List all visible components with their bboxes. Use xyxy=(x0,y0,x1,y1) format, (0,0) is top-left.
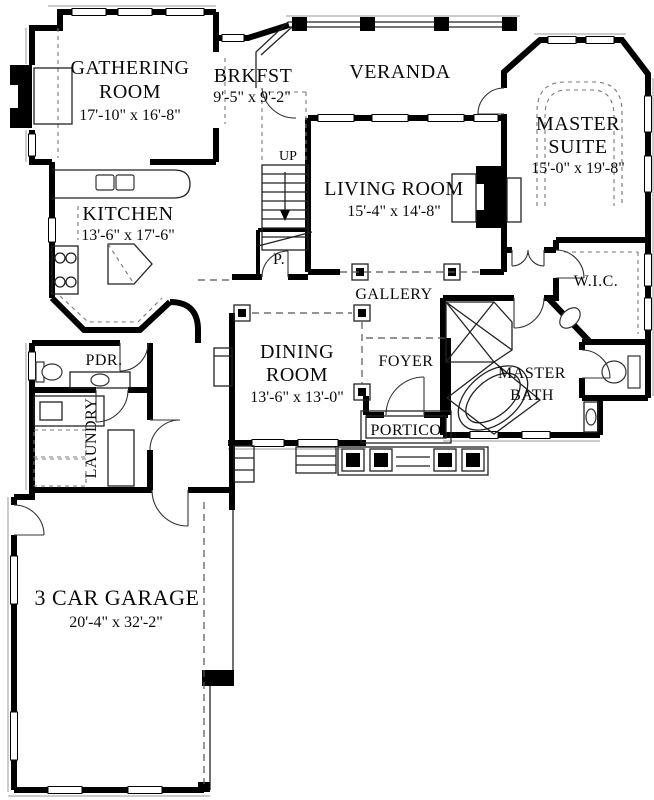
label-kitchen-dims: 13'-6" x 17'-6" xyxy=(81,227,174,244)
dryer xyxy=(34,459,86,486)
label-pdr: PDR. xyxy=(85,352,122,369)
garage-side-door xyxy=(14,505,44,535)
wc-toilet-bowl xyxy=(602,361,626,383)
kitchen-sink xyxy=(96,175,114,190)
label-gallery: GALLERY xyxy=(355,286,432,303)
washer xyxy=(34,430,86,457)
bath-vanity-sink xyxy=(586,409,596,425)
range-burner xyxy=(55,277,65,287)
label-dining-room: ROOM xyxy=(266,364,328,386)
label-garage-dims: 20'-4" x 32'-2" xyxy=(69,614,162,631)
pdr-toilet-bowl xyxy=(42,364,62,380)
label-powder: P. xyxy=(273,251,285,268)
front-door xyxy=(386,377,424,415)
label-master-bath: MASTER xyxy=(498,365,566,382)
range-burner xyxy=(66,277,76,287)
label-laundry: LAUNDRY xyxy=(83,398,100,479)
label-gathering-dims: 17'-10" x 16'-8" xyxy=(79,107,180,124)
range-burner xyxy=(66,253,76,263)
label-brkfst: BRKFST xyxy=(214,65,293,87)
hall-door xyxy=(150,420,180,450)
label-garage: 3 CAR GARAGE xyxy=(35,585,200,610)
label-portico: PORTICO xyxy=(371,422,442,439)
portico-structure xyxy=(338,411,488,475)
hall-stoop xyxy=(234,446,254,482)
label-master-suite: MASTER xyxy=(536,113,620,135)
kitchen-range xyxy=(52,246,78,294)
laundry-sink xyxy=(40,402,62,420)
label-master-bath: BATH xyxy=(510,387,554,404)
label-foyer: FOYER xyxy=(379,353,434,370)
shower xyxy=(446,302,512,362)
label-wic: W.I.C. xyxy=(574,273,619,290)
label-dining-dims: 13'-6" x 13'-0" xyxy=(250,389,343,406)
label-gathering-room: ROOM xyxy=(99,81,161,103)
wc-toilet-tank xyxy=(628,356,640,388)
pdr-sink xyxy=(91,374,109,386)
floor-plan-drawing: GATHERING ROOM 17'-10" x 16'-8" BRKFST 9… xyxy=(0,0,654,800)
label-master-suite: SUITE xyxy=(548,136,607,158)
dining-stoop xyxy=(296,447,336,473)
pdr-door xyxy=(120,343,148,371)
label-living-room-dims: 15'-4" x 14'-8" xyxy=(347,203,440,220)
garage-entry-door xyxy=(152,490,188,526)
bath-door xyxy=(514,298,544,328)
floor-plan-page: GATHERING ROOM 17'-10" x 16'-8" BRKFST 9… xyxy=(0,0,654,800)
label-kitchen: KITCHEN xyxy=(82,203,173,225)
laundry-cabinet xyxy=(108,430,134,486)
stairs xyxy=(258,165,312,250)
label-master-suite-dims: 15'-0" x 19'-8" xyxy=(531,160,624,177)
veranda-columns xyxy=(292,17,517,31)
label-veranda: VERANDA xyxy=(349,61,450,83)
label-living-room: LIVING ROOM xyxy=(324,178,463,200)
fireplace-gathering xyxy=(10,65,72,128)
label-gathering-room: GATHERING xyxy=(71,57,190,79)
master-double-doors xyxy=(512,250,544,266)
laundry-door xyxy=(96,390,128,422)
label-dining-room: DINING xyxy=(260,341,334,363)
veranda-master-door xyxy=(478,88,504,114)
doors xyxy=(14,88,610,535)
labels: GATHERING ROOM 17'-10" x 16'-8" BRKFST 9… xyxy=(35,57,625,631)
label-brkfst-dims: 9'-5" x 9'-2" xyxy=(213,89,290,106)
kitchen-sink xyxy=(116,175,134,190)
label-up: UP xyxy=(279,149,297,164)
range-burner xyxy=(55,253,65,263)
